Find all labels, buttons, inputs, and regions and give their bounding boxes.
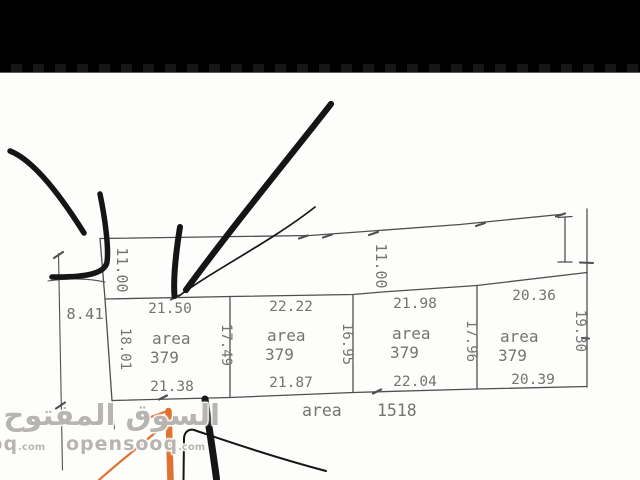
plot3-top-length: 21.98	[393, 296, 437, 312]
plot3-right-length: 17.96	[463, 320, 479, 362]
marker-curve-topleft	[10, 151, 84, 233]
plot2-right-length: 16.95	[339, 323, 355, 365]
tick	[476, 223, 485, 226]
plot1-top-length: 21.50	[148, 301, 192, 317]
marker-diagonal-arrow	[186, 104, 331, 290]
watermark-arabic-logo: السوق المفتوح	[16, 398, 220, 432]
plot4-area-value: 379	[498, 346, 527, 365]
marker-hook-left	[52, 194, 108, 277]
screenshot-stage: 11.00 11.00 8.41 21.50 22.22 21.98 20.36…	[0, 0, 640, 480]
road-width-mid-label: 11.00	[372, 243, 390, 288]
watermark-opensooq-logo-partial: opensooq.com	[0, 433, 45, 455]
plot1-area-value: 379	[150, 348, 179, 367]
total-area-value: 1518	[377, 401, 417, 420]
plot1-bottom-length: 21.38	[150, 379, 194, 395]
plot2-area-label: area	[267, 326, 306, 345]
plot4-top-length: 20.36	[512, 288, 556, 304]
plot3-area-label: area	[392, 324, 431, 343]
tick	[369, 232, 378, 235]
watermark-latin-text-partial: opensooq	[0, 433, 18, 455]
watermark-tld-text-partial: .com	[18, 442, 45, 453]
plot1-left-length: 18.01	[117, 328, 133, 370]
watermark-opensooq-logo: opensooq.com	[66, 433, 205, 455]
plot4-right-length: 19.30	[572, 310, 588, 352]
watermark-latin-text: opensooq	[66, 433, 178, 455]
total-area-label: area	[302, 401, 342, 420]
plot2-bottom-length: 21.87	[269, 375, 313, 391]
plot3-area-value: 379	[390, 343, 419, 362]
offset-dim-line	[59, 254, 63, 471]
plot3-bottom-length: 22.04	[393, 374, 437, 390]
tick	[580, 263, 593, 264]
watermark-tld-text: .com	[178, 442, 205, 453]
offset-label: 8.41	[66, 305, 103, 323]
right-dim-bracket	[558, 217, 572, 263]
road-width-left-label: 11.00	[113, 247, 131, 292]
plot4-area-label: area	[500, 327, 539, 346]
plot4-bottom-length: 20.39	[511, 372, 555, 388]
marker-thin-pointer	[179, 207, 315, 296]
tick	[556, 214, 565, 217]
plot2-area-value: 379	[265, 345, 294, 364]
plot1-right-length: 17.49	[218, 324, 234, 366]
plot-strip-left-edge	[105, 299, 112, 401]
plot1-area-label: area	[152, 329, 191, 348]
plot2-top-length: 22.22	[269, 299, 313, 315]
